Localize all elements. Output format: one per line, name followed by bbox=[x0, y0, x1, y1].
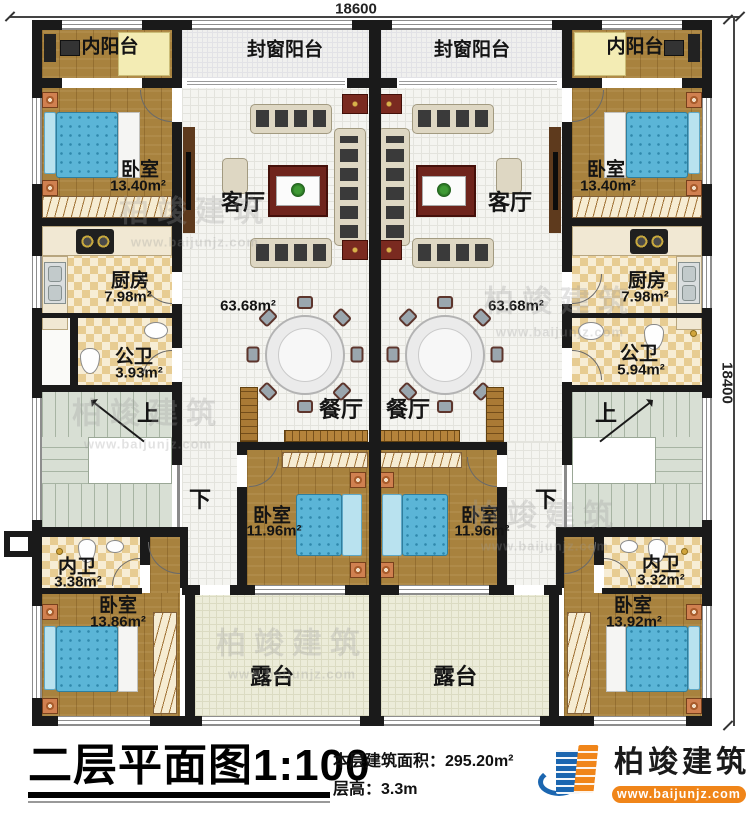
room-label-terrace-right: 露台 bbox=[433, 666, 477, 688]
dining-chair bbox=[491, 347, 504, 363]
nightstand bbox=[350, 472, 366, 488]
bed-mattress bbox=[56, 112, 118, 178]
wall bbox=[497, 442, 507, 455]
wall bbox=[562, 527, 712, 537]
armchair bbox=[222, 158, 248, 194]
sofa-cushions bbox=[386, 136, 404, 238]
stair-treads-right bbox=[572, 484, 702, 527]
party-wall bbox=[369, 20, 381, 726]
room-label-terrace-left: 露台 bbox=[250, 666, 294, 688]
sofa-cushions bbox=[256, 244, 326, 261]
window bbox=[32, 606, 42, 698]
nightstand bbox=[42, 698, 58, 714]
washbasin bbox=[620, 540, 638, 553]
stair-down-label-left: 下 bbox=[189, 489, 211, 511]
corridor-floor-left bbox=[182, 442, 237, 595]
balcony-cabinet-left bbox=[44, 34, 56, 62]
stair-landing-left bbox=[88, 437, 172, 484]
window bbox=[32, 398, 42, 520]
area-label: 13.86m² bbox=[90, 615, 146, 630]
terrace-railing bbox=[384, 716, 540, 726]
floor-drain bbox=[681, 548, 688, 555]
dining-chair bbox=[247, 347, 260, 363]
title-underline-thin bbox=[28, 801, 330, 803]
wall bbox=[564, 313, 712, 318]
bed-mattress bbox=[402, 494, 448, 556]
window bbox=[702, 398, 712, 520]
room-label-inner-balcony-right: 内阳台 bbox=[606, 38, 663, 57]
sofa-cushions bbox=[340, 136, 358, 238]
terrace-floor-left bbox=[195, 595, 369, 716]
window bbox=[602, 20, 682, 30]
room-label-dining-right: 餐厅 bbox=[386, 399, 430, 421]
bed-blanket bbox=[118, 626, 138, 692]
tv-left bbox=[186, 152, 191, 210]
area-label: 13.40m² bbox=[580, 179, 636, 194]
wall bbox=[562, 218, 712, 226]
wall bbox=[185, 595, 195, 716]
wall bbox=[32, 385, 182, 392]
wall bbox=[32, 78, 62, 88]
area-label: 11.96m² bbox=[454, 524, 509, 539]
wall bbox=[375, 78, 397, 88]
wall bbox=[172, 382, 182, 465]
stair-treads-left bbox=[42, 484, 172, 527]
title-block: 二层平面图1:100 本层建筑面积：295.20m² 层高：3.3m 柏竣建筑 … bbox=[0, 740, 750, 813]
wall bbox=[32, 218, 182, 226]
stair-up-label-left: 上 bbox=[137, 403, 159, 425]
stair-treads-left bbox=[42, 437, 88, 484]
side-table bbox=[342, 94, 368, 114]
bed-pillows bbox=[688, 112, 700, 174]
tv-right bbox=[553, 152, 558, 210]
dining-chair bbox=[351, 347, 364, 363]
nightstand bbox=[686, 698, 702, 714]
washbasin bbox=[144, 322, 168, 339]
wall bbox=[562, 385, 712, 392]
wall bbox=[562, 304, 572, 348]
window bbox=[594, 716, 686, 726]
area-label: 13.40m² bbox=[110, 179, 166, 194]
nightstand bbox=[42, 180, 58, 196]
bed-pillows bbox=[44, 626, 56, 690]
side-table bbox=[342, 240, 368, 260]
brand-website: www.baijunjz.com bbox=[612, 786, 746, 803]
room-label-living-left: 客厅 bbox=[221, 192, 265, 214]
bed-blanket bbox=[606, 626, 626, 692]
stair-treads-right bbox=[572, 392, 702, 437]
room-label-living-right: 客厅 bbox=[488, 192, 532, 214]
terrace-doorway-left bbox=[200, 585, 230, 595]
plant bbox=[291, 183, 305, 197]
area-label: 7.98m² bbox=[104, 290, 152, 305]
room-label-enclosed-balcony-left: 封窗阳台 bbox=[247, 41, 323, 60]
sofa-cushions bbox=[418, 110, 488, 127]
stair-down-label-right: 下 bbox=[535, 489, 557, 511]
wall bbox=[347, 78, 369, 88]
console-cabinet bbox=[284, 430, 368, 442]
dining-chair bbox=[297, 296, 313, 309]
wall bbox=[602, 588, 712, 594]
room-label-enclosed-balcony-right: 封窗阳台 bbox=[434, 41, 510, 60]
cabinet bbox=[486, 387, 504, 442]
wall bbox=[549, 595, 559, 716]
window bbox=[702, 256, 712, 308]
nightstand bbox=[350, 562, 366, 578]
sink-basin bbox=[48, 266, 62, 282]
bed-pillows bbox=[44, 112, 56, 174]
window bbox=[32, 98, 42, 184]
bed-pillows bbox=[382, 494, 402, 556]
window bbox=[62, 20, 142, 30]
floor-drain bbox=[690, 330, 697, 337]
wardrobe bbox=[572, 196, 702, 218]
cabinet bbox=[240, 387, 258, 442]
bed-mattress bbox=[56, 626, 118, 692]
sliding-door bbox=[187, 81, 345, 85]
stove-left bbox=[76, 229, 114, 254]
area-label: 3.32m² bbox=[637, 573, 685, 588]
wall bbox=[375, 442, 507, 450]
balcony-unit-right bbox=[664, 40, 684, 56]
corridor-floor-right bbox=[507, 442, 562, 595]
terrace-floor-right bbox=[381, 595, 549, 716]
wall bbox=[180, 527, 188, 588]
area-label: 3.38m² bbox=[54, 575, 102, 590]
wall bbox=[562, 382, 572, 465]
bed-pillows bbox=[342, 494, 362, 556]
bed-mattress bbox=[296, 494, 342, 556]
area-label: 11.96m² bbox=[246, 524, 301, 539]
window bbox=[702, 606, 712, 698]
wall bbox=[172, 122, 182, 272]
title-underline bbox=[28, 792, 330, 798]
stair-treads-right bbox=[656, 437, 702, 484]
floor-plan-page: 内阳台 封窗阳台 封窗阳台 内阳台 卧室 13.40m² 卧室 13.40m² … bbox=[0, 0, 750, 813]
kitchen-sink-left bbox=[44, 262, 66, 304]
nightstand bbox=[686, 180, 702, 196]
stair-landing-right bbox=[572, 437, 656, 484]
flue-box bbox=[4, 531, 34, 557]
dining-chair bbox=[387, 347, 400, 363]
balcony-cabinet-right bbox=[688, 34, 700, 62]
nightstand bbox=[686, 92, 702, 108]
nightstand bbox=[42, 92, 58, 108]
brand-name: 柏竣建筑 bbox=[614, 748, 750, 778]
nightstand bbox=[42, 604, 58, 620]
plant bbox=[437, 183, 451, 197]
wardrobe bbox=[282, 452, 368, 468]
wall bbox=[562, 78, 602, 88]
sink-basin bbox=[48, 285, 62, 301]
window bbox=[255, 585, 345, 595]
table-inner bbox=[418, 328, 472, 382]
table-inner bbox=[278, 328, 332, 382]
stair-up-label-right: 上 bbox=[595, 403, 617, 425]
armchair bbox=[496, 158, 522, 194]
area-label: 7.98m² bbox=[621, 290, 669, 305]
floor-area-text: 本层建筑面积：295.20m² bbox=[333, 754, 514, 770]
dining-chair bbox=[437, 400, 453, 413]
wall bbox=[70, 318, 78, 385]
sliding-door bbox=[399, 81, 557, 85]
kitchen-sink-right bbox=[678, 262, 700, 304]
logo-building-icon bbox=[573, 745, 598, 793]
balcony-unit-left bbox=[60, 40, 80, 56]
floor-height-text: 层高：3.3m bbox=[333, 782, 417, 798]
console-cabinet bbox=[376, 430, 460, 442]
sink-basin bbox=[682, 285, 696, 301]
sofa-cushions bbox=[418, 244, 488, 261]
plan-title: 二层平面图1:100 bbox=[28, 744, 371, 788]
area-label: 5.94m² bbox=[617, 363, 665, 378]
room-label-dining-left: 餐厅 bbox=[319, 399, 363, 421]
bed-pillows bbox=[688, 626, 700, 690]
wall bbox=[556, 527, 564, 588]
wall bbox=[32, 527, 182, 537]
stove-right bbox=[630, 229, 668, 254]
window bbox=[392, 20, 552, 30]
wall bbox=[682, 78, 712, 88]
dining-table-right bbox=[405, 315, 485, 395]
dimension-top-value: 18600 bbox=[335, 1, 377, 18]
bed-mattress bbox=[626, 112, 688, 178]
wardrobe bbox=[567, 612, 591, 714]
wall bbox=[32, 313, 180, 318]
wall bbox=[172, 304, 182, 348]
area-label: 3.93m² bbox=[115, 366, 163, 381]
wardrobe bbox=[153, 612, 177, 714]
window bbox=[58, 716, 150, 726]
area-label-open-right: 63.68m² bbox=[488, 299, 544, 314]
terrace-doorway-right bbox=[514, 585, 544, 595]
stair-railing bbox=[564, 465, 567, 527]
area-label-open-left: 63.68m² bbox=[220, 299, 276, 314]
wardrobe bbox=[42, 196, 172, 218]
floor-drain bbox=[56, 548, 63, 555]
washbasin bbox=[578, 322, 604, 340]
dining-chair bbox=[297, 400, 313, 413]
washbasin bbox=[106, 540, 124, 553]
wardrobe bbox=[376, 452, 462, 468]
area-label: 13.92m² bbox=[606, 615, 662, 630]
dimension-tick bbox=[723, 720, 734, 731]
sofa-cushions bbox=[256, 110, 326, 127]
wall bbox=[237, 442, 369, 450]
window bbox=[702, 98, 712, 184]
window bbox=[192, 20, 352, 30]
dining-chair bbox=[437, 296, 453, 309]
wall bbox=[142, 78, 182, 88]
window bbox=[32, 256, 42, 308]
dimension-right-value: 18400 bbox=[719, 362, 736, 404]
dining-table-left bbox=[265, 315, 345, 395]
sink-basin bbox=[682, 266, 696, 282]
nightstand bbox=[686, 604, 702, 620]
terrace-railing bbox=[202, 716, 360, 726]
wall bbox=[562, 122, 572, 272]
room-label-inner-balcony-left: 内阳台 bbox=[81, 38, 138, 57]
stair-railing bbox=[177, 465, 180, 527]
bed-mattress bbox=[626, 626, 688, 692]
wall bbox=[237, 442, 247, 455]
window bbox=[399, 585, 489, 595]
